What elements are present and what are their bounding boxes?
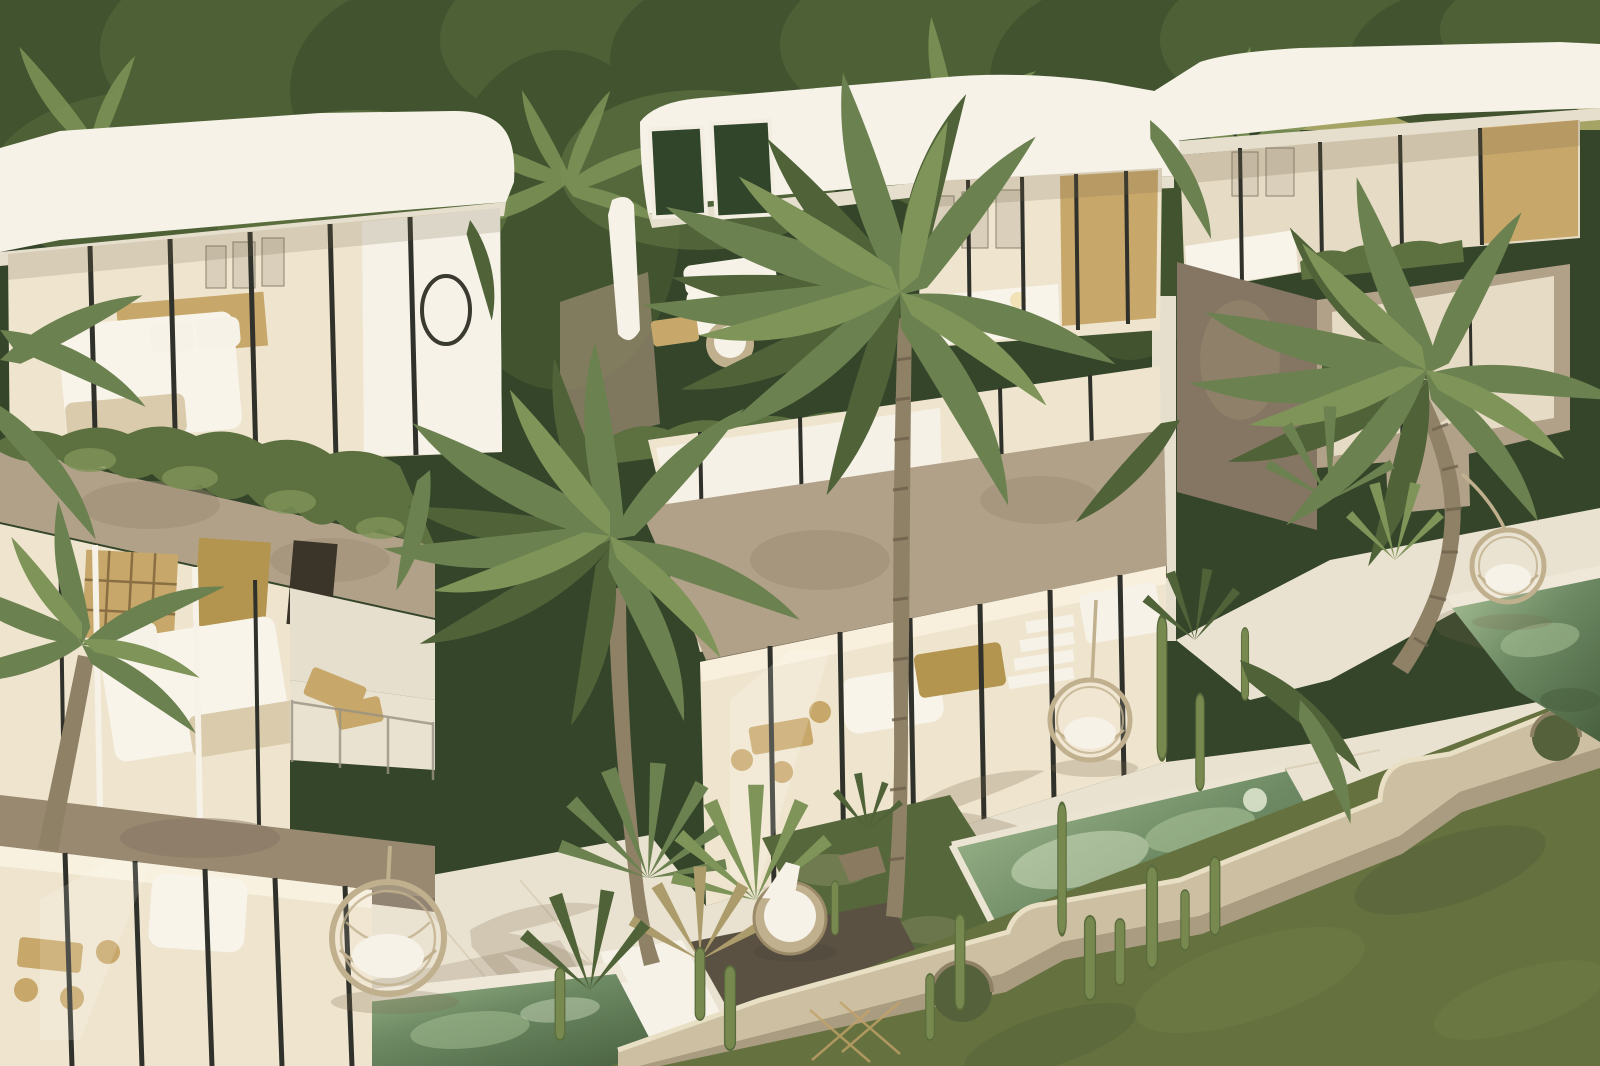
scene-canvas — [0, 0, 1600, 1066]
ground-sofa — [148, 873, 249, 954]
gold-wall-panel — [193, 538, 271, 631]
villa-aerial-render — [0, 0, 1600, 1066]
lower-terrace — [290, 588, 435, 780]
